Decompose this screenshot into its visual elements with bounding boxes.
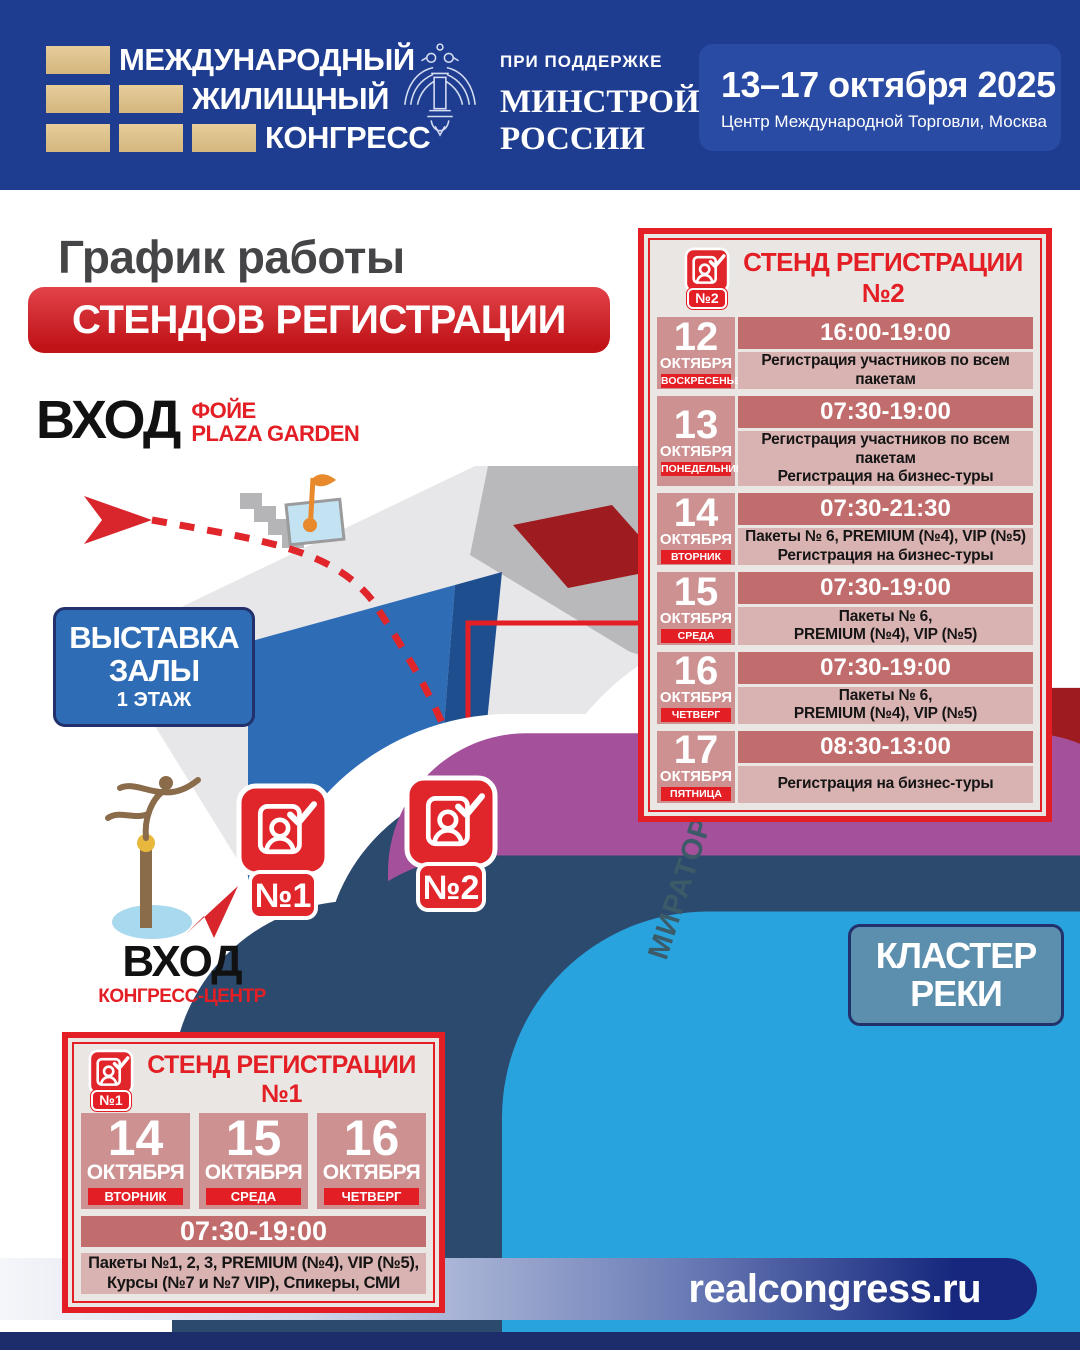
day-number: 17 [674, 732, 719, 768]
month-label: ОКТЯБРЯ [660, 610, 732, 627]
logo-row: ЖИЛИЩНЫЙ [46, 83, 430, 114]
badge-check-icon [428, 796, 482, 843]
support-label: ПРИ ПОДДЕРЖКЕ [500, 52, 700, 72]
ministry-name: МИНСТРОЙ РОССИИ [500, 84, 700, 158]
weekday-badge: ВОСКРЕСЕНЬЕ [661, 374, 731, 388]
logo-block-icon [119, 85, 183, 113]
stand1-time-range: 07:30-19:00 [81, 1216, 426, 1247]
day-number: 14 [674, 495, 719, 531]
event-dates: 13–17 октября 2025 [721, 64, 1061, 106]
date-cell: 16 ОКТЯБРЯ ЧЕТВЕРГ [657, 652, 735, 724]
route-arrowhead-icon [436, 738, 468, 776]
schedule-row: 13 ОКТЯБРЯ ПОНЕДЕЛЬНИК 07:30-19:00 Регис… [657, 396, 1033, 486]
marker-1-label: №1 [255, 877, 312, 915]
day-number: 14 [108, 1116, 164, 1161]
time-range: 08:30-13:00 [738, 731, 1033, 763]
marker-2-label: №2 [423, 869, 480, 907]
logo-block-icon [119, 124, 183, 152]
schedule-row: 14 ОКТЯБРЯ ВТОРНИК 07:30-21:30 Пакеты № … [657, 493, 1033, 565]
day-number: 16 [344, 1116, 400, 1161]
day-number: 15 [674, 574, 719, 610]
weekday-badge: ЧЕТВЕРГ [324, 1188, 419, 1205]
time-range: 07:30-19:00 [738, 396, 1033, 428]
exhibition-sign-line-1: ВЫСТАВКА [69, 622, 238, 655]
date-card: 15 ОКТЯБРЯ СРЕДА [199, 1113, 308, 1209]
weekday-badge: ВТОРНИК [88, 1188, 183, 1205]
stand1-header: №1 СТЕНД РЕГИСТРАЦИИ №1 [81, 1051, 426, 1109]
stand1-title: СТЕНД РЕГИСТРАЦИИ №1 [137, 1051, 426, 1109]
map-corridor [250, 555, 640, 1105]
registration-stand-2-marker: №2 [407, 778, 495, 910]
title-banner-text: СТЕНДОВ РЕГИСТРАЦИИ [72, 298, 566, 343]
weekday-badge: ЧЕТВЕРГ [661, 708, 731, 722]
weekday-badge: ВТОРНИК [661, 550, 731, 564]
day-number: 16 [674, 653, 719, 689]
date-card: 14 ОКТЯБРЯ ВТОРНИК [81, 1113, 190, 1209]
poster-page: МЕЖДУНАРОДНЫЙ ЖИЛИЩНЫЙ КОНГРЕСС [0, 0, 1080, 1350]
time-range: 07:30-19:00 [738, 572, 1033, 604]
page-title: График работы [58, 230, 405, 284]
connector-stand2 [468, 623, 646, 782]
exhibition-sign-line-3: 1 ЭТАЖ [117, 689, 191, 712]
congress-entrance-arrow-icon [186, 886, 238, 938]
date-cell: 14 ОКТЯБРЯ ВТОРНИК [657, 493, 735, 565]
exhibition-sign-line-2: ЗАЛЫ [109, 655, 199, 688]
event-dates-box: 13–17 октября 2025 Центр Международной Т… [699, 44, 1061, 151]
row-description: Пакеты № 6, PREMIUM (№4), VIP (№5) [738, 607, 1033, 644]
exhibition-halls-blue-dark [432, 572, 502, 892]
stand1-marker-icon: №1 [85, 1049, 137, 1111]
statue-icon [108, 776, 198, 939]
header: МЕЖДУНАРОДНЫЙ ЖИЛИЩНЫЙ КОНГРЕСС [0, 0, 1080, 190]
stand2-title: СТЕНД РЕГИСТРАЦИИ №2 [733, 247, 1033, 309]
support-block: ПРИ ПОДДЕРЖКЕ МИНСТРОЙ РОССИИ [500, 52, 700, 158]
schedule-row: 15 ОКТЯБРЯ СРЕДА 07:30-19:00 Пакеты № 6,… [657, 572, 1033, 644]
bottom-bar [0, 1332, 1080, 1350]
stand1-schedule-table: №1 СТЕНД РЕГИСТРАЦИИ №1 14 ОКТЯБРЯ ВТОРН… [62, 1032, 445, 1313]
month-label: ОКТЯБРЯ [660, 689, 732, 706]
ministry-line-1: МИНСТРОЙ [500, 84, 700, 121]
date-cell: 15 ОКТЯБРЯ СРЕДА [657, 572, 735, 644]
ministry-line-2: РОССИИ [500, 121, 700, 158]
cluster-sign-line-1: КЛАСТЕР [876, 937, 1036, 975]
congress-logo: МЕЖДУНАРОДНЫЙ ЖИЛИЩНЫЙ КОНГРЕСС [46, 44, 430, 153]
date-cell: 17 ОКТЯБРЯ ПЯТНИЦА [657, 731, 735, 803]
month-label: ОКТЯБРЯ [660, 443, 732, 460]
entrance-congress-label: ВХОД КОНГРЕСС-ЦЕНТР [92, 940, 272, 1008]
entrance-sub-2: PLAZA GARDEN [191, 422, 359, 445]
day-number: 13 [674, 407, 719, 443]
logo-block-icon [46, 46, 110, 74]
cluster-sign-line-2: РЕКИ [910, 975, 1002, 1013]
minstroy-eagle-emblem-icon [396, 38, 484, 150]
entrance-foyer-label: ВХОД ФОЙЕ PLAZA GARDEN [36, 396, 359, 445]
logo-row: МЕЖДУНАРОДНЫЙ [46, 44, 430, 75]
stand2-schedule-table: №2 СТЕНД РЕГИСТРАЦИИ №2 12 ОКТЯБРЯ ВОСКР… [638, 228, 1052, 822]
badge-check-icon [260, 804, 314, 851]
day-number: 12 [674, 319, 719, 355]
entrance-word: ВХОД [92, 940, 272, 984]
logo-line-2: ЖИЛИЩНЫЙ [192, 83, 389, 114]
event-venue: Центр Международной Торговли, Москва [721, 112, 1061, 132]
date-card: 16 ОКТЯБРЯ ЧЕТВЕРГ [317, 1113, 426, 1209]
schedule-row: 16 ОКТЯБРЯ ЧЕТВЕРГ 07:30-19:00 Пакеты № … [657, 652, 1033, 724]
row-description: Регистрация участников по всем пакетам Р… [738, 431, 1033, 486]
title-banner: СТЕНДОВ РЕГИСТРАЦИИ [28, 287, 610, 353]
month-label: ОКТЯБРЯ [660, 768, 732, 785]
garden-pool [240, 493, 344, 548]
river-cluster-sign: КЛАСТЕР РЕКИ [848, 924, 1064, 1026]
month-label: ОКТЯБРЯ [323, 1161, 421, 1185]
schedule-row: 12 ОКТЯБРЯ ВОСКРЕСЕНЬЕ 16:00-19:00 Регис… [657, 317, 1033, 389]
row-description: Пакеты № 6, PREMIUM (№4), VIP (№5) [738, 687, 1033, 724]
row-description: Регистрация участников по всем пакетам [738, 352, 1033, 389]
time-range: 16:00-19:00 [738, 317, 1033, 349]
stand1-marker-label: №1 [91, 1090, 130, 1111]
registration-stand-1-marker: №1 [239, 786, 327, 918]
weekday-badge: ПОНЕДЕЛЬНИК [661, 462, 731, 476]
time-range: 07:30-21:30 [738, 493, 1033, 525]
logo-block-icon [192, 124, 256, 152]
entrance-word: ВХОД [36, 396, 179, 445]
row-description: Регистрация на бизнес-туры [738, 766, 1033, 803]
month-label: ОКТЯБРЯ [205, 1161, 303, 1185]
time-range: 07:30-19:00 [738, 652, 1033, 684]
logo-line-1: МЕЖДУНАРОДНЫЙ [119, 44, 415, 75]
logo-block-icon [46, 124, 110, 152]
footer-url[interactable]: realcongress.ru [688, 1267, 981, 1312]
logo-block-icon [46, 85, 110, 113]
entrance-sub-1: ФОЙЕ [191, 399, 359, 422]
row-description: Пакеты № 6, PREMIUM (№4), VIP (№5) Регис… [738, 528, 1033, 565]
stand1-description: Пакеты №1, 2, 3, PREMIUM (№4), VIP (№5),… [81, 1253, 426, 1294]
schedule-row: 17 ОКТЯБРЯ ПЯТНИЦА 08:30-13:00 Регистрац… [657, 731, 1033, 803]
stand2-marker-label: №2 [687, 288, 726, 309]
day-number: 15 [226, 1116, 282, 1161]
entrance-arrow-icon [84, 496, 152, 544]
exhibition-halls-blue [248, 585, 455, 880]
date-cell: 13 ОКТЯБРЯ ПОНЕДЕЛЬНИК [657, 396, 735, 486]
entrance-sub: КОНГРЕСС-ЦЕНТР [92, 986, 272, 1008]
weekday-badge: СРЕДА [206, 1188, 301, 1205]
stand2-marker-icon: №2 [681, 247, 733, 309]
flag-icon [303, 474, 336, 532]
weekday-badge: ПЯТНИЦА [661, 787, 731, 801]
exhibition-halls-sign: ВЫСТАВКА ЗАЛЫ 1 ЭТАЖ [53, 607, 255, 727]
stand1-dates: 14 ОКТЯБРЯ ВТОРНИК 15 ОКТЯБРЯ СРЕДА 16 О… [81, 1113, 426, 1209]
month-label: ОКТЯБРЯ [660, 355, 732, 372]
weekday-badge: СРЕДА [661, 629, 731, 643]
stand2-header: №2 СТЕНД РЕГИСТРАЦИИ №2 [657, 247, 1033, 309]
date-cell: 12 ОКТЯБРЯ ВОСКРЕСЕНЬЕ [657, 317, 735, 389]
logo-row: КОНГРЕСС [46, 122, 430, 153]
month-label: ОКТЯБРЯ [660, 531, 732, 548]
stand2-rows: 12 ОКТЯБРЯ ВОСКРЕСЕНЬЕ 16:00-19:00 Регис… [657, 317, 1033, 803]
month-label: ОКТЯБРЯ [87, 1161, 185, 1185]
